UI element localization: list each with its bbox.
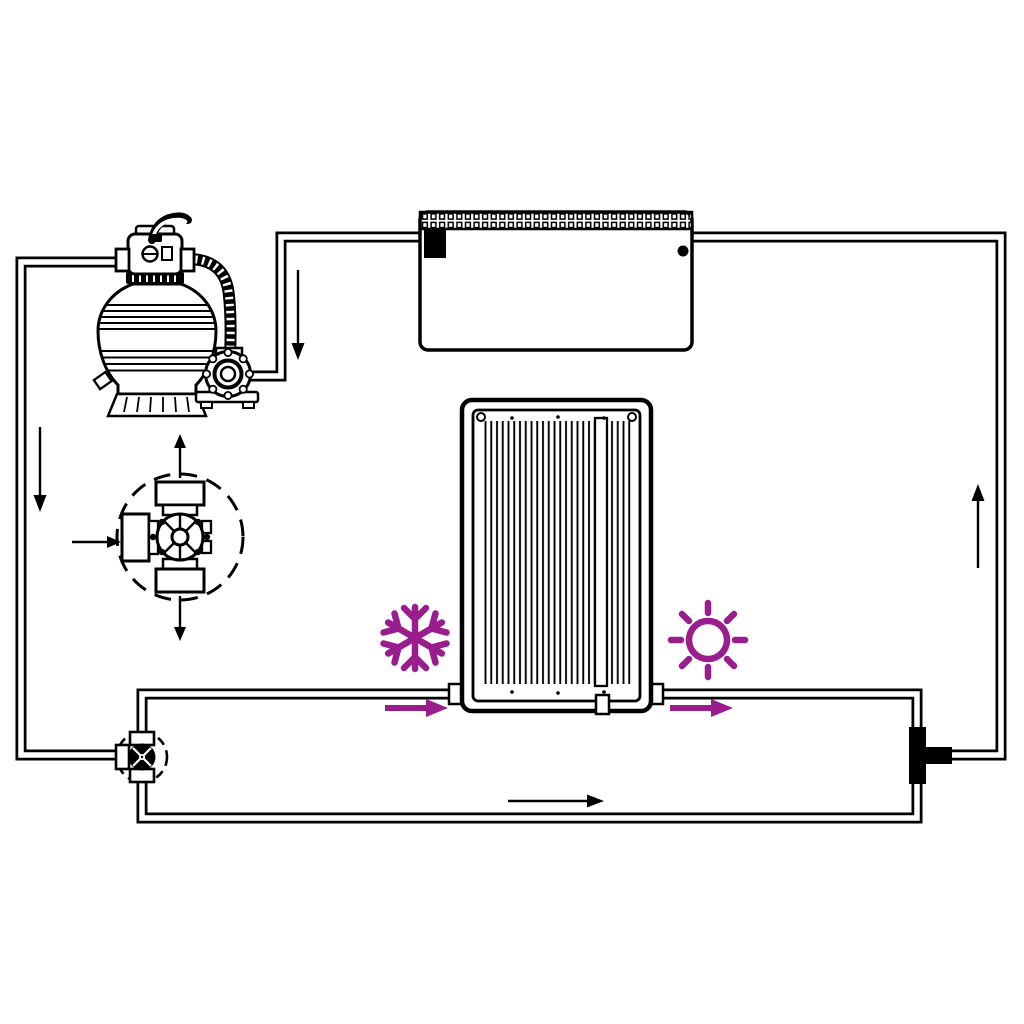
schematic-page [0, 0, 1024, 1024]
arrow-into-panel-inlet [385, 699, 448, 717]
panel-section-divider [595, 418, 607, 686]
corner-screw [477, 413, 485, 421]
solar-collector-panel [449, 400, 663, 714]
corner-screw [628, 413, 636, 421]
arrow-down-supply-line [34, 427, 47, 512]
snowflake-icon [383, 607, 448, 669]
arrow-out-of-panel-outlet [670, 699, 733, 717]
filter-tank [98, 284, 216, 394]
valve-left-port [116, 249, 129, 271]
tank-skirt [108, 394, 206, 416]
swimming-pool [420, 212, 692, 350]
sand-filter-pump [94, 216, 258, 416]
multiport-valve-detail [72, 434, 243, 641]
skimmer-inlet [424, 229, 446, 258]
diagram-canvas [0, 0, 1024, 1024]
valve-right-port [181, 249, 194, 271]
coping-edge [420, 212, 692, 229]
tube-array [482, 421, 632, 684]
panel-bottom-connector [596, 695, 609, 714]
return-jet [678, 246, 689, 257]
pool-basin [420, 212, 692, 350]
arrow-down-pool-to-pump [292, 270, 305, 360]
tee-connector [909, 727, 952, 784]
sun-icon [671, 603, 745, 677]
bypass-three-way-valve [116, 732, 167, 782]
arrow-right-bypass-line [508, 795, 604, 808]
arrow-up-return-to-pool [972, 484, 985, 568]
